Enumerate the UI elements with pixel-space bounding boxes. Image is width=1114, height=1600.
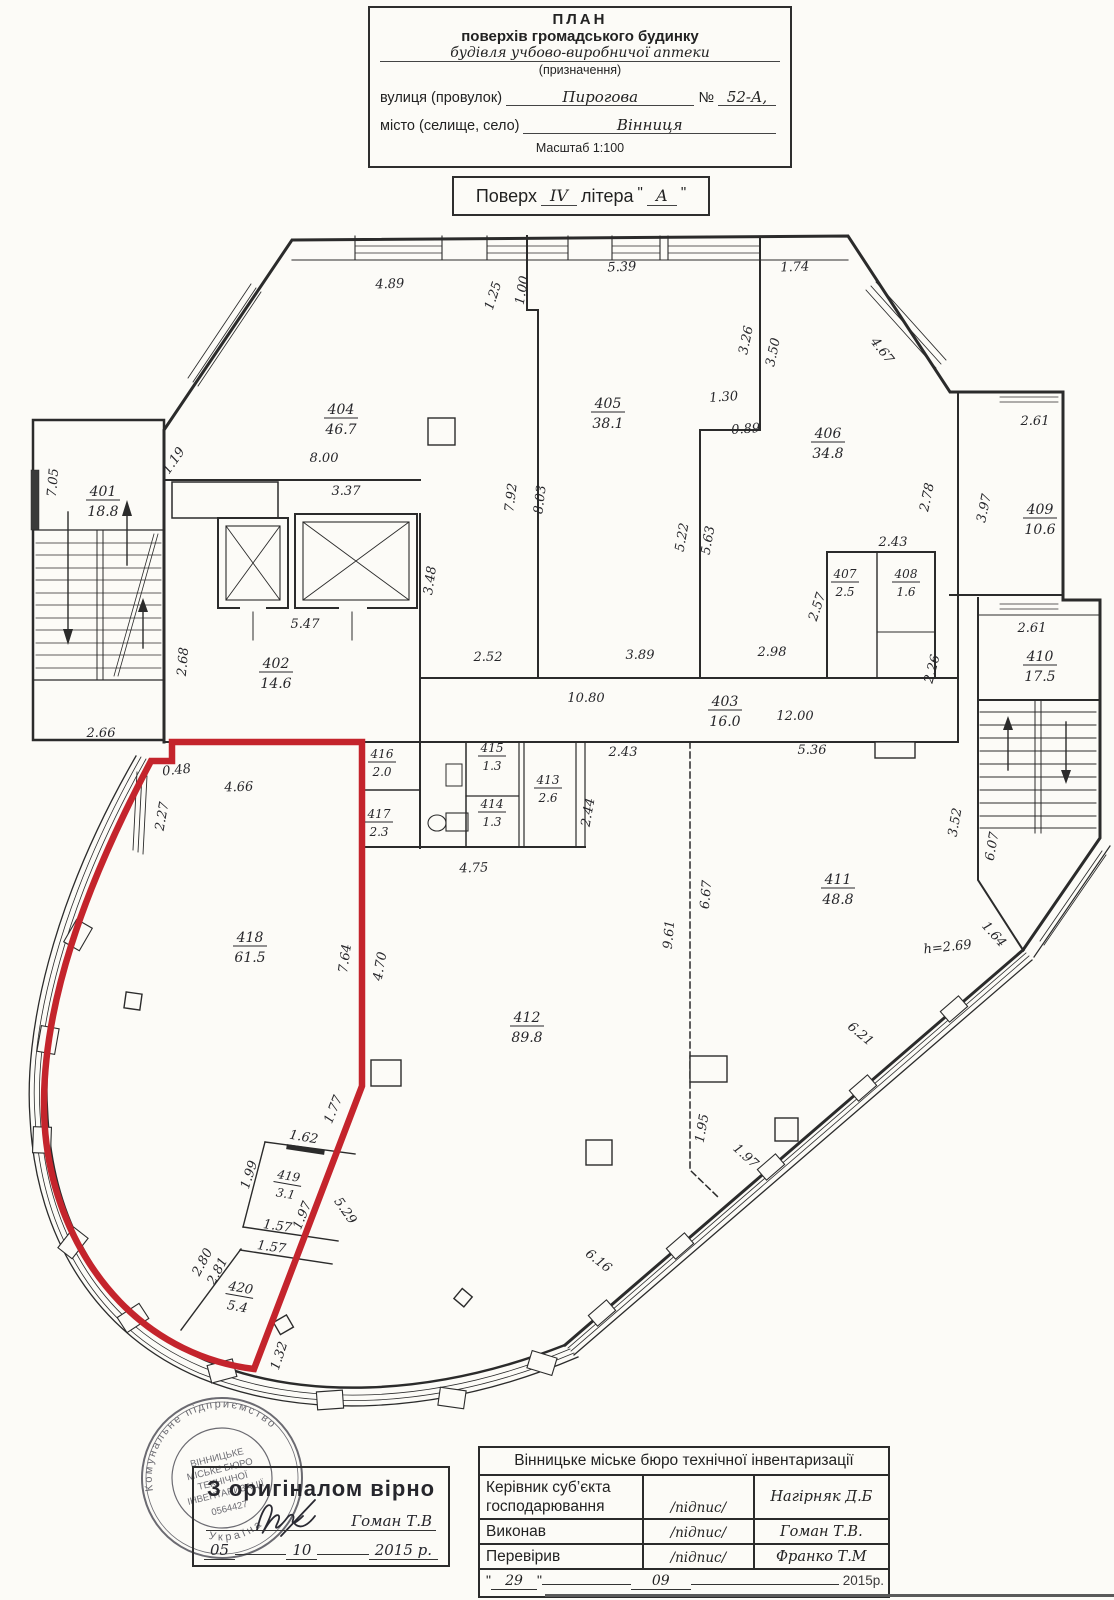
room-number: 411 — [824, 872, 852, 888]
dimension-label: 3.89 — [626, 648, 655, 663]
dimension-label: 1.64 — [978, 919, 1009, 951]
dimension-label: 5.36 — [798, 743, 827, 758]
dimension-label: 0.89 — [731, 421, 761, 438]
floor-label: Поверх — [476, 186, 537, 207]
dimension-label: 4.66 — [223, 780, 253, 796]
room-label: 40316.0 — [708, 694, 742, 730]
certify-year: 2015 р. — [369, 1541, 438, 1560]
dimension-label: 3.26 — [736, 325, 757, 356]
dimension-label: 8.00 — [310, 451, 339, 466]
dimension-label: 1.00 — [513, 275, 533, 306]
room-number: 414 — [480, 797, 504, 811]
room-label: 4172.3 — [365, 807, 393, 839]
street-label: вулиця (провулок) — [380, 90, 502, 106]
room-number: 417 — [367, 807, 391, 821]
dimension-label: 1.77 — [321, 1093, 346, 1126]
city-value: Вінниця — [523, 117, 776, 134]
dimension-label: 2.61 — [1017, 621, 1047, 636]
room-area: 1.3 — [482, 759, 501, 773]
dimension-label: 1.57 — [256, 1238, 287, 1257]
room-area: 38.1 — [592, 416, 623, 432]
dimension-label: 3.52 — [946, 807, 966, 838]
city-label: місто (селище, село) — [380, 118, 519, 134]
scale-label: Масштаб 1:100 — [380, 141, 780, 155]
room-label: 4072.5 — [831, 567, 859, 599]
room-label: 40634.8 — [811, 426, 845, 462]
room-area: 48.8 — [821, 892, 853, 908]
date-month: 09 — [631, 1573, 691, 1590]
room-area: 2.0 — [371, 765, 391, 779]
title-form: ПЛАН поверхів громадського будинку будів… — [368, 6, 792, 168]
room-label: 41861.5 — [233, 930, 267, 966]
room-area: 2.6 — [537, 791, 557, 805]
dimension-label: 4.67 — [866, 334, 897, 367]
room-area: 34.8 — [812, 446, 843, 462]
room-number: 403 — [711, 694, 739, 710]
dimension-label: 6.16 — [582, 1246, 614, 1276]
elevator-shaft-large — [295, 514, 417, 608]
dimension-label: 1.32 — [268, 1340, 291, 1372]
dimension-label: 3.50 — [763, 337, 784, 368]
room-label: 4205.4 — [222, 1279, 255, 1317]
room-label: 4141.3 — [478, 797, 506, 829]
door-419 — [289, 1147, 322, 1152]
dimension-label: 5.47 — [291, 617, 321, 632]
room-number: 402 — [262, 656, 290, 672]
outer-wall-diagonal-outer — [574, 960, 1032, 1355]
date-day: 29 — [491, 1573, 537, 1590]
room-label: 4081.6 — [892, 567, 920, 599]
diagonal-window-glazing — [571, 956, 1029, 1351]
dimension-label: 2.44 — [578, 797, 598, 829]
toilet-icon — [428, 813, 468, 831]
dimension-label: 7.05 — [45, 468, 62, 498]
floor-letter-box: Поверх IV літера " А " — [452, 176, 710, 216]
dimension-label: 6.21 — [844, 1019, 876, 1049]
number-label: № — [698, 90, 714, 106]
outer-wall-arc-inner — [46, 762, 565, 1388]
bureau-title: Вінницьке міське бюро технічної інвентар… — [479, 1447, 889, 1475]
dimension-label: 6.07 — [983, 830, 1003, 862]
room-area: 10.6 — [1024, 522, 1055, 538]
room-area: 61.5 — [234, 950, 265, 966]
table-row: Керівник суб’єкта господарювання /підпис… — [479, 1475, 889, 1519]
room-area: 3.1 — [275, 1185, 296, 1202]
dimension-label: 4.70 — [370, 951, 390, 983]
street-value: Пирогова — [506, 89, 694, 106]
arc-window-glazing — [34, 757, 574, 1401]
room-number: 404 — [327, 402, 355, 418]
dimension-label: 2.26 — [921, 653, 943, 686]
room-area: 17.5 — [1024, 669, 1055, 685]
room-label: 40446.7 — [324, 402, 358, 438]
room-number: 413 — [536, 773, 560, 787]
scan-edge-artifact — [545, 1594, 1114, 1597]
room-label: 41289.8 — [510, 1010, 544, 1046]
room-area: 46.7 — [324, 422, 356, 438]
form-title: ПЛАН — [380, 12, 780, 28]
dimension-label: 1.30 — [709, 389, 739, 406]
dimension-label: 2.68 — [175, 647, 193, 678]
room-number: 407 — [833, 567, 857, 581]
dimension-label: 2.43 — [608, 745, 638, 760]
top-windows — [355, 246, 760, 253]
room-number: 420 — [226, 1279, 254, 1298]
room-area: 5.4 — [226, 1298, 249, 1316]
room-area: 2.5 — [834, 585, 854, 599]
room-number: 415 — [480, 741, 504, 755]
dimension-label: 1.97 — [730, 1141, 762, 1172]
room-area: 2.3 — [368, 825, 388, 839]
dimension-label: 5.39 — [607, 260, 636, 276]
room-label: 41017.5 — [1023, 649, 1057, 685]
outer-wall-arc-outer — [29, 756, 578, 1406]
room-number: 406 — [814, 426, 842, 442]
room-label: 4193.1 — [271, 1167, 304, 1203]
room-label: 4151.3 — [478, 741, 506, 773]
elevator-shaft-small — [218, 518, 288, 608]
letter-label: літера — [581, 186, 634, 207]
room-label: 4162.0 — [368, 747, 396, 779]
purpose-caption: (призначення) — [380, 63, 780, 78]
dimension-label: 9.61 — [661, 920, 678, 950]
dimension-label: h=2.69 — [923, 938, 973, 958]
room-label: 40214.6 — [259, 656, 293, 692]
floor-value: IV — [541, 186, 577, 206]
dimension-label: 1.99 — [238, 1159, 261, 1191]
room-number: 401 — [89, 484, 117, 500]
dimension-label: 5.63 — [699, 525, 719, 556]
dimension-label: 1.25 — [482, 280, 505, 312]
certify-month: 10 — [286, 1541, 317, 1560]
dimension-label: 8.03 — [531, 484, 549, 515]
dimension-label: 1.74 — [780, 260, 809, 276]
room-number: 408 — [894, 567, 918, 581]
table-row: Перевірив /підпис/ Франко Т.М — [479, 1544, 889, 1569]
room-label: 41148.8 — [821, 872, 855, 908]
dimension-label: 4.89 — [374, 277, 404, 293]
letter-value: А — [647, 186, 677, 206]
dimension-label: 6.67 — [698, 879, 716, 910]
inventory-bureau-table: Вінницьке міське бюро технічної інвентар… — [478, 1446, 890, 1598]
signature — [249, 1494, 339, 1538]
dimension-label: 2.78 — [917, 482, 938, 514]
table-row: Виконав /підпис/ Гоман Т.В. — [479, 1519, 889, 1544]
dimension-label: 2.57 — [806, 590, 830, 624]
outer-wall — [164, 236, 1100, 950]
dimension-label: 2.43 — [878, 535, 908, 550]
dimension-label: 1.57 — [262, 1217, 293, 1236]
duct-box — [172, 482, 278, 518]
room-area: 1.3 — [482, 815, 501, 829]
date-year: 2015р. — [843, 1573, 884, 1588]
dimension-label: 3.97 — [974, 492, 995, 524]
window-top-left-diagonal — [188, 284, 261, 386]
room-number: 405 — [594, 396, 622, 412]
room-label: 4132.6 — [534, 773, 562, 805]
room-area: 89.8 — [511, 1030, 542, 1046]
window-401 — [31, 470, 39, 530]
room-number: 412 — [513, 1010, 541, 1026]
room-area: 16.0 — [709, 714, 740, 730]
building-purpose-value: будівля учбово-виробничої аптеки — [386, 45, 774, 61]
dimension-label: 2.66 — [86, 726, 116, 741]
dimension-label: 10.80 — [567, 691, 604, 706]
room-number: 416 — [370, 747, 394, 761]
arc-mullions — [33, 919, 558, 1410]
dimension-label: 4.75 — [458, 861, 488, 877]
room-area: 1.6 — [896, 585, 915, 599]
room-area: 14.6 — [260, 676, 291, 692]
certify-box: З оригіналом вірно Гоман Т.В 05 10 2015 … — [192, 1466, 450, 1567]
sink-icon — [446, 764, 462, 786]
dimension-label: 2.61 — [1020, 414, 1050, 429]
dimension-label: 0.48 — [161, 762, 191, 780]
dimension-label: 5.29 — [330, 1195, 359, 1227]
dimension-label: 1.95 — [693, 1113, 713, 1144]
form-subtitle: поверхів громадського будинку — [380, 28, 780, 45]
floor-plan-drawing: 40118.840214.640316.040446.740538.140634… — [0, 0, 1114, 1600]
dimension-label: 5.22 — [673, 522, 693, 553]
room-label: 40118.8 — [86, 484, 120, 520]
stair-treads-right — [980, 712, 1096, 828]
dimension-label: 7.64 — [336, 943, 355, 974]
room-number: 410 — [1026, 649, 1054, 665]
dimension-label: 2.52 — [473, 650, 503, 665]
dimension-label: 2.98 — [757, 645, 787, 660]
room-label: 40910.6 — [1023, 502, 1057, 538]
number-value: 52-А, — [718, 89, 776, 106]
dimension-label: 12.00 — [776, 709, 813, 724]
room-number: 409 — [1026, 502, 1054, 518]
scanned-floor-plan-sheet: 40118.840214.640316.040446.740538.140634… — [0, 0, 1114, 1600]
table-date-row: " 29 " 09 2015р. — [480, 1570, 888, 1596]
dimension-label: 1.62 — [288, 1128, 319, 1148]
dimension-label: 2.27 — [152, 800, 172, 833]
stair-arrows-right — [1003, 716, 1071, 784]
stair-arrows-left — [63, 500, 148, 648]
dimension-label: 3.37 — [332, 484, 362, 499]
room-area: 18.8 — [87, 504, 118, 520]
dimension-label: 7.92 — [502, 482, 520, 513]
room-number: 418 — [236, 930, 264, 946]
room-label: 40538.1 — [591, 396, 625, 432]
dimension-label: 3.48 — [421, 565, 440, 596]
certify-name: Гоман Т.В — [351, 1512, 432, 1530]
certify-day: 05 — [204, 1541, 235, 1560]
